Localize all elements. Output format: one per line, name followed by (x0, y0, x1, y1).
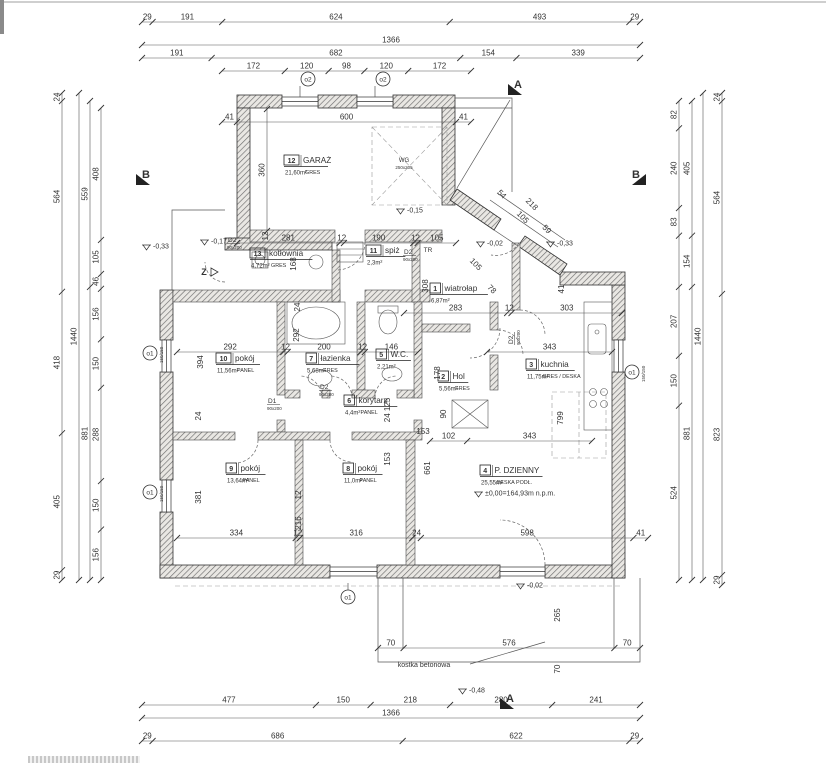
section-letter: A (514, 79, 522, 91)
room-name: P. DZIENNY (495, 466, 540, 475)
door-tag-size: 90x200 (267, 406, 282, 411)
dim-label: 334 (230, 529, 244, 538)
dim-label: 83 (670, 217, 679, 226)
dim-label: 408 (92, 167, 101, 181)
room-name: wiatrołap (444, 284, 478, 293)
dim-label: 29 (53, 570, 62, 579)
dim-label: 343 (543, 343, 557, 352)
dim-label: 98 (342, 62, 351, 71)
door-tag-id: D1 (268, 398, 277, 405)
room-number: 7 (309, 356, 313, 363)
dim-label-free: WG (399, 158, 410, 164)
dim-label: 12 (505, 304, 514, 313)
level-label: -0,02 (487, 241, 503, 248)
dim-label: 682 (329, 49, 343, 58)
dim-label: 24 (53, 92, 62, 101)
dim-label: 292 (223, 343, 237, 352)
room-number: 4 (483, 468, 487, 475)
dim-label: 12 (411, 234, 420, 243)
room-name: pokój (241, 464, 261, 473)
dim-label-free: 381 (194, 490, 203, 504)
room-name: kotłownia (269, 249, 304, 258)
level-label: -0,15 (407, 208, 423, 215)
room-floor: PANEL (361, 410, 378, 416)
level-label: ±0,00=164,93m n.p.m. (485, 491, 555, 498)
dim-label-free: 799 (556, 411, 565, 425)
side-porch (172, 210, 225, 290)
room-name: kuchnia (541, 360, 570, 369)
dim-label: 576 (502, 639, 516, 648)
dim-label: 41 (459, 113, 468, 122)
window-size: 150/150 (159, 485, 164, 502)
dim-label-free: 78 (485, 283, 498, 296)
dim-label: 316 (349, 529, 363, 538)
dim-label: 1366 (382, 36, 400, 45)
dim-label: 172 (433, 62, 447, 71)
dim-label: 12 (281, 343, 290, 352)
dim-label-free: 59 (540, 223, 553, 236)
window-tag: o1 (344, 594, 352, 601)
dim-label: 150 (92, 356, 101, 370)
dim-label: 881 (683, 426, 692, 440)
door-tag-size: 90x200 (516, 330, 521, 345)
dim-label: 207 (670, 314, 679, 328)
dim-label: 150 (670, 374, 679, 388)
dim-label: 493 (533, 13, 547, 22)
dim-label: 105 (92, 250, 101, 264)
room-floor: PANEL (237, 368, 254, 374)
dim-label-free: 153 (416, 427, 430, 436)
window-size: 150/150 (159, 346, 164, 363)
kitchen-counter (584, 302, 612, 430)
dim-label: 405 (683, 161, 692, 175)
terrace-outline (378, 578, 640, 662)
dim-label: 339 (572, 49, 586, 58)
room-number: 3 (529, 362, 533, 369)
door-tag-id: D2 (320, 384, 329, 391)
room-area: 2,21m² (377, 365, 396, 371)
window-tag: o1 (146, 350, 154, 357)
dim-label: 343 (523, 432, 537, 441)
dim-label-free: 24 (293, 302, 302, 311)
east-window (614, 340, 623, 372)
door-tag: D190x200 (267, 398, 282, 411)
dim-label: 156 (92, 307, 101, 321)
dim-label: 41 (636, 529, 645, 538)
dim-label: 218 (404, 696, 418, 705)
level-label: -0,02 (527, 583, 543, 590)
dim-label-free: 105 (468, 256, 484, 272)
dim-label: 598 (520, 529, 534, 538)
dim-label: 1440 (70, 327, 79, 345)
room-area: 2,3m² (367, 261, 382, 267)
dim-label: 150 (92, 498, 101, 512)
door-tag: D290x200 (508, 330, 521, 345)
room-number: 2 (441, 374, 445, 381)
level-symbol (142, 245, 151, 250)
dim-label-free: 250x205 (395, 165, 413, 170)
dim-label-free: 70 (553, 664, 562, 673)
level-symbol (200, 240, 209, 245)
dim-label-free: TR (424, 247, 433, 254)
dim-label-free: 105 (515, 209, 531, 225)
section-letter: B (632, 169, 640, 181)
dim-label-free: 168 (289, 257, 298, 271)
dim-label: 12 (358, 343, 367, 352)
room-number: 8 (346, 466, 350, 473)
level-symbol (476, 242, 485, 247)
dim-label: 405 (53, 494, 62, 508)
dim-label-free: 292 (292, 328, 301, 342)
dim-label: 154 (482, 49, 496, 58)
room-name: pokój (358, 464, 378, 473)
dim-label: 191 (170, 49, 184, 58)
level-symbol (474, 492, 483, 497)
dim-label: 624 (329, 13, 343, 22)
dim-label: 29 (630, 13, 639, 22)
room-number: 5 (379, 352, 383, 359)
dim-label: 29 (143, 13, 152, 22)
room-area: 21,60m² (285, 171, 307, 177)
dim-label: 360 (258, 163, 267, 177)
room-floor: GRES (271, 263, 287, 269)
dim-label: 102 (442, 432, 456, 441)
room-name: pokój (235, 354, 255, 363)
room-floor: GRES / DESKA (543, 374, 581, 380)
dim-label: 150 (337, 696, 351, 705)
room-floor: GRES (305, 170, 321, 176)
level-label: -0,33 (153, 244, 169, 251)
toilet-wc (378, 306, 398, 334)
dim-label: 240 (670, 161, 679, 175)
garage-window-2 (357, 97, 393, 106)
room-number: 11 (370, 248, 378, 255)
room-name: GARAŻ (303, 155, 331, 165)
dim-label: 46 (92, 276, 101, 285)
dim-label: 418 (53, 355, 62, 369)
window-tag: o2 (379, 76, 387, 83)
window-tag: o1 (628, 369, 636, 376)
dim-label: 191 (181, 13, 195, 22)
room-number: 9 (229, 466, 233, 473)
dim-label: 283 (449, 304, 463, 313)
wardrobe (452, 400, 488, 428)
floor-plan-svg: 2919162449329136619168215433917212098120… (0, 0, 826, 768)
terrace-door (500, 567, 545, 576)
dim-label-free: 24 (194, 411, 203, 420)
dim-label: 29 (713, 575, 722, 584)
section-letter: Z (201, 267, 207, 277)
room-floor: GRES (323, 368, 339, 374)
room-name: W.C. (391, 350, 409, 359)
room-number: 10 (220, 356, 228, 363)
door-tag-size: 90x200 (319, 392, 334, 397)
dim-label: 477 (222, 696, 236, 705)
dim-label: 82 (670, 110, 679, 119)
dim-label: 70 (386, 639, 395, 648)
dim-label: 24 (412, 529, 421, 538)
door-tag-id: D2 (508, 335, 515, 344)
section-letter: B (142, 169, 150, 181)
dim-label-free: 12 (261, 231, 270, 240)
dim-label: 156 (92, 548, 101, 562)
dim-label-free: 41 (557, 284, 566, 293)
dim-label: 120 (380, 62, 394, 71)
garage-window-1 (282, 97, 318, 106)
dim-label: 172 (247, 62, 261, 71)
exterior-walls (160, 95, 625, 578)
dim-label-free: 265 (553, 608, 562, 622)
dim-label: 200 (317, 343, 331, 352)
room-name: korytarz (359, 396, 388, 405)
level-symbol (396, 209, 405, 214)
section-arrow (211, 268, 218, 276)
room-number: 6 (347, 398, 351, 405)
pantry-steps (337, 242, 363, 262)
dim-label: 105 (430, 234, 444, 243)
south-window (330, 567, 377, 576)
window-tag: o1 (146, 489, 154, 496)
level-symbol (546, 242, 555, 247)
level-symbol (516, 584, 525, 589)
dim-label: 564 (713, 190, 722, 204)
dim-label: 24 (713, 92, 722, 101)
room-floor: GRES (455, 386, 471, 392)
room-area: 6,87m² (431, 299, 450, 305)
floor-plan-drawing: 2919162449329136619168215433917212098120… (0, 0, 826, 768)
dim-label: 1440 (694, 327, 703, 345)
room-area: 4,72m² (251, 264, 270, 270)
dim-label-free: 54 (495, 188, 508, 201)
window-tag: o2 (304, 76, 312, 83)
dim-label: 524 (670, 486, 679, 500)
room-number: 13 (254, 251, 262, 258)
room-name: Hol (453, 372, 465, 381)
level-label: -0,17 (211, 239, 227, 246)
dim-label: 1366 (382, 709, 400, 718)
dim-label-free: 90 (439, 409, 448, 418)
dim-label-free: 394 (196, 355, 205, 369)
dim-label: 29 (630, 732, 639, 741)
dim-label: 154 (683, 254, 692, 268)
dim-label-free: 216 (294, 516, 303, 530)
room-name: spiż (385, 246, 400, 255)
dim-label-free: 12 (294, 490, 303, 499)
dim-label-free: kostka betonowa (398, 662, 451, 669)
window-size: 150/150 (641, 365, 646, 382)
dim-label: 564 (53, 189, 62, 203)
section-letter: A (506, 693, 514, 705)
dim-label: 41 (225, 113, 234, 122)
dim-label: 559 (81, 187, 90, 201)
room-area: 4,4m² (345, 411, 360, 417)
room-floor: PANEL (360, 478, 377, 484)
dim-label: 281 (282, 234, 296, 243)
level-symbol (458, 689, 467, 694)
dim-label: 622 (509, 732, 523, 741)
dim-label-free: 153 (383, 452, 392, 466)
level-label: -0,33 (557, 241, 573, 248)
dim-label: 600 (340, 113, 354, 122)
dim-label: 12 (337, 234, 346, 243)
room-name: łazienka (321, 354, 351, 363)
dim-label: 823 (713, 427, 722, 441)
dim-label-free: 308 (421, 279, 430, 293)
dim-label-free: 218 (524, 196, 540, 212)
diagonal-entry-wall-left (450, 189, 501, 230)
level-label: -0,48 (469, 688, 485, 695)
dim-label: 29 (143, 732, 152, 741)
dim-label: 881 (81, 426, 90, 440)
door-tag-size: 90x200 (227, 245, 242, 250)
door-tag-size: 90x200 (403, 257, 418, 262)
dim-label: 303 (560, 304, 574, 313)
room-floor: DESKA PODŁ. (497, 480, 533, 486)
door-tag: D290x200 (319, 384, 334, 397)
door-tag-id: D2 (404, 249, 413, 256)
dim-label: 190 (372, 234, 386, 243)
dim-label-free: 661 (423, 461, 432, 475)
room-number: 12 (288, 158, 296, 165)
dim-label: 288 (92, 427, 101, 441)
room-floor: PANEL (243, 478, 260, 484)
window-openings (162, 97, 623, 576)
dim-label: 70 (623, 639, 632, 648)
room-number: 1 (433, 286, 437, 293)
dim-label: 686 (271, 732, 285, 741)
dim-label: 241 (589, 696, 603, 705)
room-area: 11,56m² (217, 369, 239, 375)
dim-label: 120 (300, 62, 314, 71)
door-tag-id: D2 (228, 237, 237, 244)
